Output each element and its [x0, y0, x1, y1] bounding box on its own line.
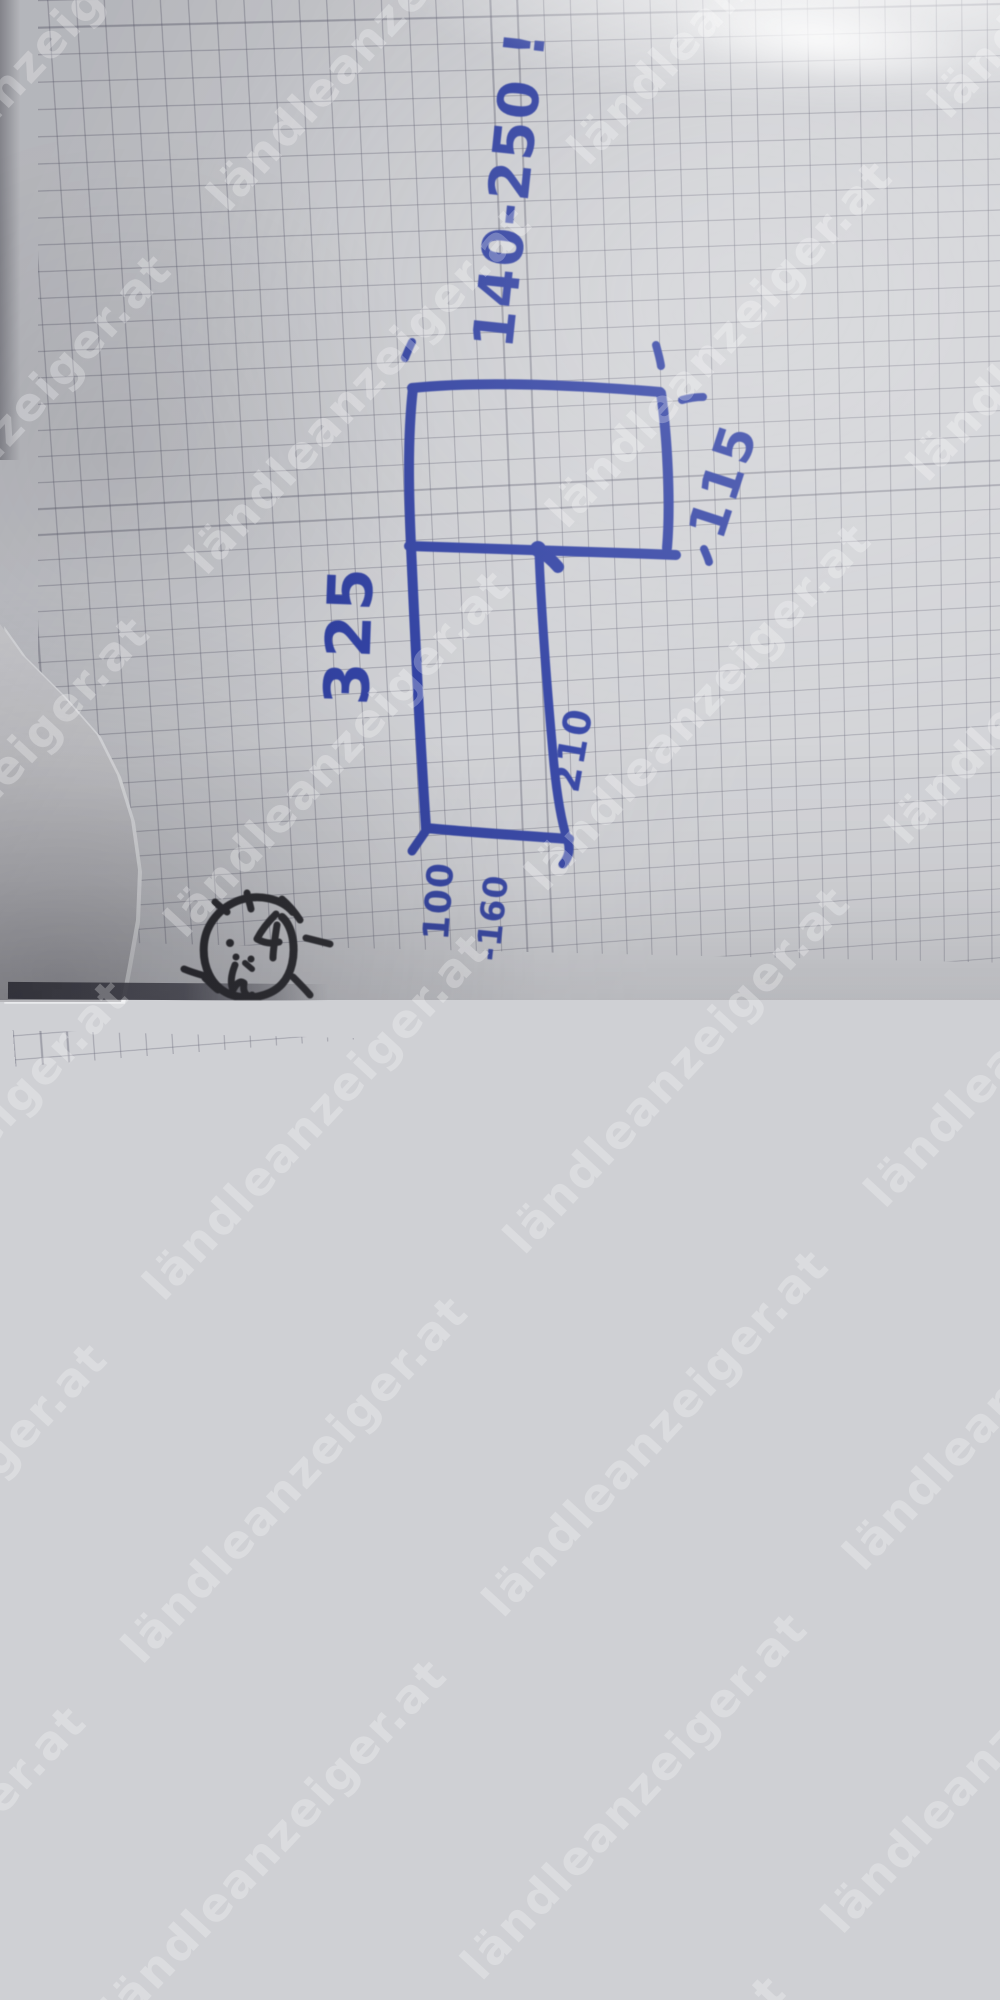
dimension-label-left-height: 325	[310, 563, 388, 707]
sketch-right-edge	[661, 393, 669, 548]
doodle-dot-2	[233, 954, 240, 961]
tick-right-upper	[682, 397, 703, 400]
watermark-text: ländleanzeiger.at	[450, 1601, 818, 1990]
watermark-text: ländleanzeiger.at	[89, 1647, 457, 2000]
doodle-dot-3	[248, 956, 255, 963]
watermark-text: ländleanzeiger.at	[471, 1238, 839, 1627]
doodle-dash-inner	[245, 963, 252, 969]
watermark-text: ländleanzeiger.at	[0, 1331, 118, 1720]
dimension-label-bottom-width-alt: -160	[468, 873, 516, 963]
doodle-ray-bottom	[252, 995, 253, 1000]
hand-drawn-sketch: 140-250 ! 325 115 210 100 -160	[0, 0, 1000, 1000]
dimension-labels: 140-250 ! 325 115 210 100 -160	[310, 26, 771, 962]
corner-tail-bottom-right	[563, 839, 569, 864]
watermark-text: ländleanzeiger.at	[811, 1554, 1000, 1943]
sketch-inner-edge	[539, 553, 567, 839]
doodle-ray-lower-right	[293, 977, 310, 995]
watermark-text: ländleanzeiger.at	[111, 1284, 479, 1673]
doodle-ray-top	[247, 893, 251, 909]
doodle-ray-right	[306, 938, 330, 944]
tick-top-left	[405, 342, 412, 358]
dimension-label-right-depth: 115	[677, 416, 770, 546]
doodle-bottom-squiggle	[231, 965, 247, 995]
tick-right-lower	[704, 549, 709, 562]
tick-top-right	[656, 345, 661, 366]
sketch-left-edge	[409, 388, 426, 828]
sketch-top-edge	[412, 384, 660, 392]
sun-face-doodle	[184, 893, 330, 1000]
doodle-inner-squiggle	[257, 914, 279, 958]
dimension-label-bottom-width: 100	[416, 861, 462, 942]
dimension-label-top-range: 140-250 !	[461, 26, 559, 351]
doodle-ray-left	[184, 969, 205, 976]
photo-of-hand-drawn-plan: { "watermark": { "text": "ländleanzeiger…	[0, 0, 1000, 1000]
corner-tail-bottom-left	[412, 829, 427, 851]
watermark-text: ländleanzeiger.at	[429, 1964, 797, 2000]
doodle-face-circle	[204, 897, 294, 997]
sketch-bottom-edge	[426, 828, 569, 839]
watermark-text: ländleanzeiger.at	[832, 1191, 1000, 1580]
junction-blob	[530, 541, 546, 557]
doodle-dot-1	[226, 939, 234, 947]
watermark-text: ländleanzeiger.at	[0, 1694, 97, 2000]
